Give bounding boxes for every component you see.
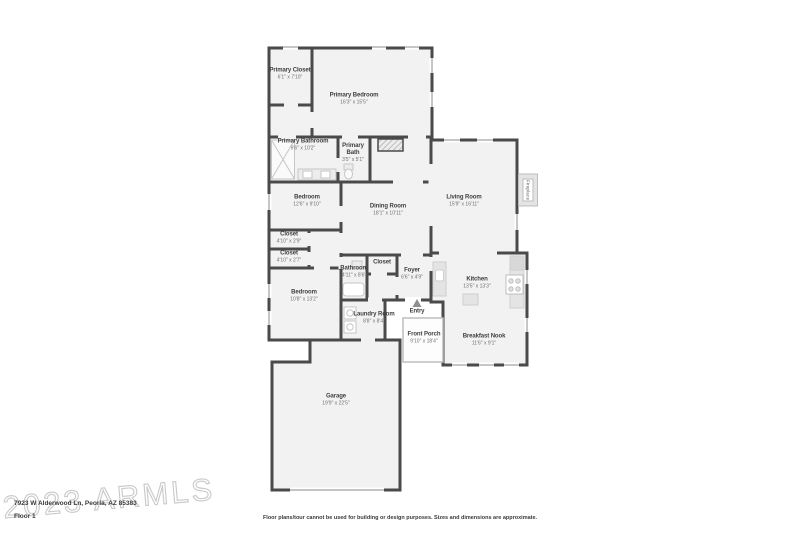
room-hall-closet bbox=[367, 255, 397, 274]
dryer bbox=[344, 321, 356, 333]
floorplan-page: 2023 ARMLS bbox=[0, 0, 800, 533]
room-closet-1 bbox=[269, 230, 309, 249]
room-foyer bbox=[397, 255, 431, 300]
suite-corridor bbox=[269, 105, 312, 137]
property-address: 7923 W Alderwood Ln, Peoria, AZ 85383 bbox=[14, 500, 137, 507]
walls-and-rooms bbox=[269, 48, 527, 490]
room-garage bbox=[272, 340, 400, 490]
room-laundry bbox=[341, 300, 385, 340]
room-primary-closet bbox=[269, 48, 312, 105]
bathtub bbox=[343, 283, 364, 296]
refrigerator bbox=[510, 256, 524, 270]
room-primary-bath bbox=[338, 137, 370, 182]
fireplace-box bbox=[519, 174, 538, 206]
double-vanity bbox=[298, 169, 336, 180]
linen-hatch bbox=[378, 139, 403, 151]
bath2-vanity bbox=[352, 261, 362, 269]
room-closet-2 bbox=[269, 249, 309, 268]
front-porch-outline bbox=[403, 318, 443, 362]
kitchen-island bbox=[463, 294, 478, 305]
room-bedroom-2 bbox=[269, 268, 341, 340]
disclaimer-text: Floor plans/tour cannot be used for buil… bbox=[0, 515, 800, 521]
room-living bbox=[431, 140, 517, 253]
toilet bbox=[344, 164, 353, 179]
room-primary-bedroom bbox=[312, 48, 432, 137]
kitchen-sink bbox=[436, 270, 444, 281]
shower bbox=[272, 140, 295, 179]
washer bbox=[344, 307, 356, 319]
room-dining bbox=[341, 182, 431, 255]
stove bbox=[506, 275, 523, 294]
hallway-2 bbox=[367, 274, 397, 300]
room-bedroom-1 bbox=[269, 182, 341, 230]
floorplan-svg: 2023 ARMLS bbox=[0, 0, 800, 533]
hallway bbox=[309, 230, 341, 268]
